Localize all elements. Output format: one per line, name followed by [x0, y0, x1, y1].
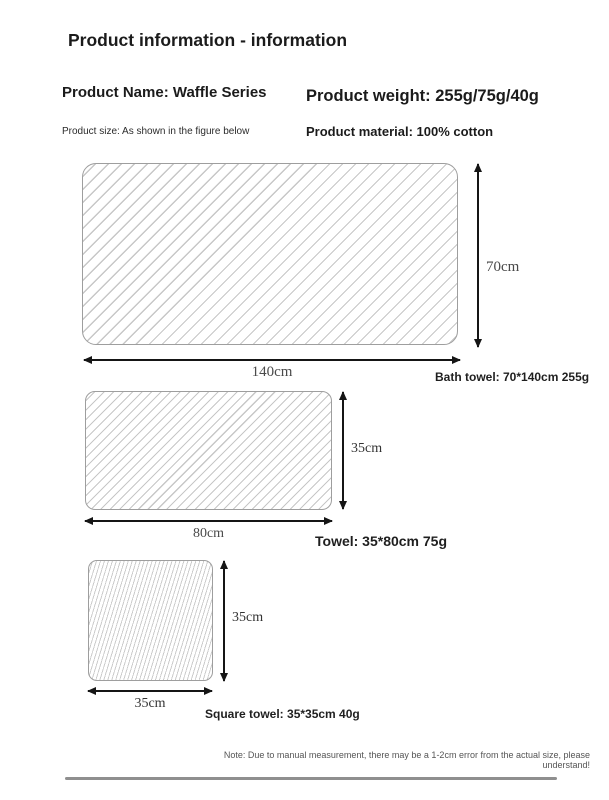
towel-shape: [85, 391, 332, 510]
square-towel-width-label: 35cm: [88, 696, 212, 712]
towel-caption: Towel: 35*80cm 75g: [315, 533, 447, 549]
bath-towel-width-arrow: [84, 359, 460, 361]
square-towel-shape: [88, 560, 213, 681]
page-title: Product information - information: [68, 30, 347, 51]
square-towel-caption: Square towel: 35*35cm 40g: [205, 707, 360, 721]
product-size-note: Product size: As shown in the figure bel…: [62, 126, 249, 137]
bath-towel-height-label: 70cm: [486, 259, 519, 276]
bath-towel-shape: [82, 163, 458, 345]
towel-height-label: 35cm: [351, 441, 382, 457]
bath-towel-caption: Bath towel: 70*140cm 255g: [435, 370, 589, 384]
square-towel-width-arrow: [88, 690, 212, 692]
bottom-divider: [65, 777, 557, 780]
product-weight: Product weight: 255g/75g/40g: [306, 87, 539, 106]
product-material: Product material: 100% cotton: [306, 124, 493, 139]
towel-height-arrow: [342, 392, 344, 509]
bath-towel-width-label: 140cm: [84, 364, 460, 381]
square-towel-height-arrow: [223, 561, 225, 681]
towel-width-arrow: [85, 520, 332, 522]
square-towel-height-label: 35cm: [232, 610, 263, 626]
towel-width-label: 80cm: [85, 526, 332, 542]
measurement-note: Note: Due to manual measurement, there m…: [200, 750, 590, 770]
bath-towel-height-arrow: [477, 164, 479, 347]
product-info-page: Product information - information Produc…: [0, 0, 609, 800]
product-name: Product Name: Waffle Series: [62, 84, 267, 101]
